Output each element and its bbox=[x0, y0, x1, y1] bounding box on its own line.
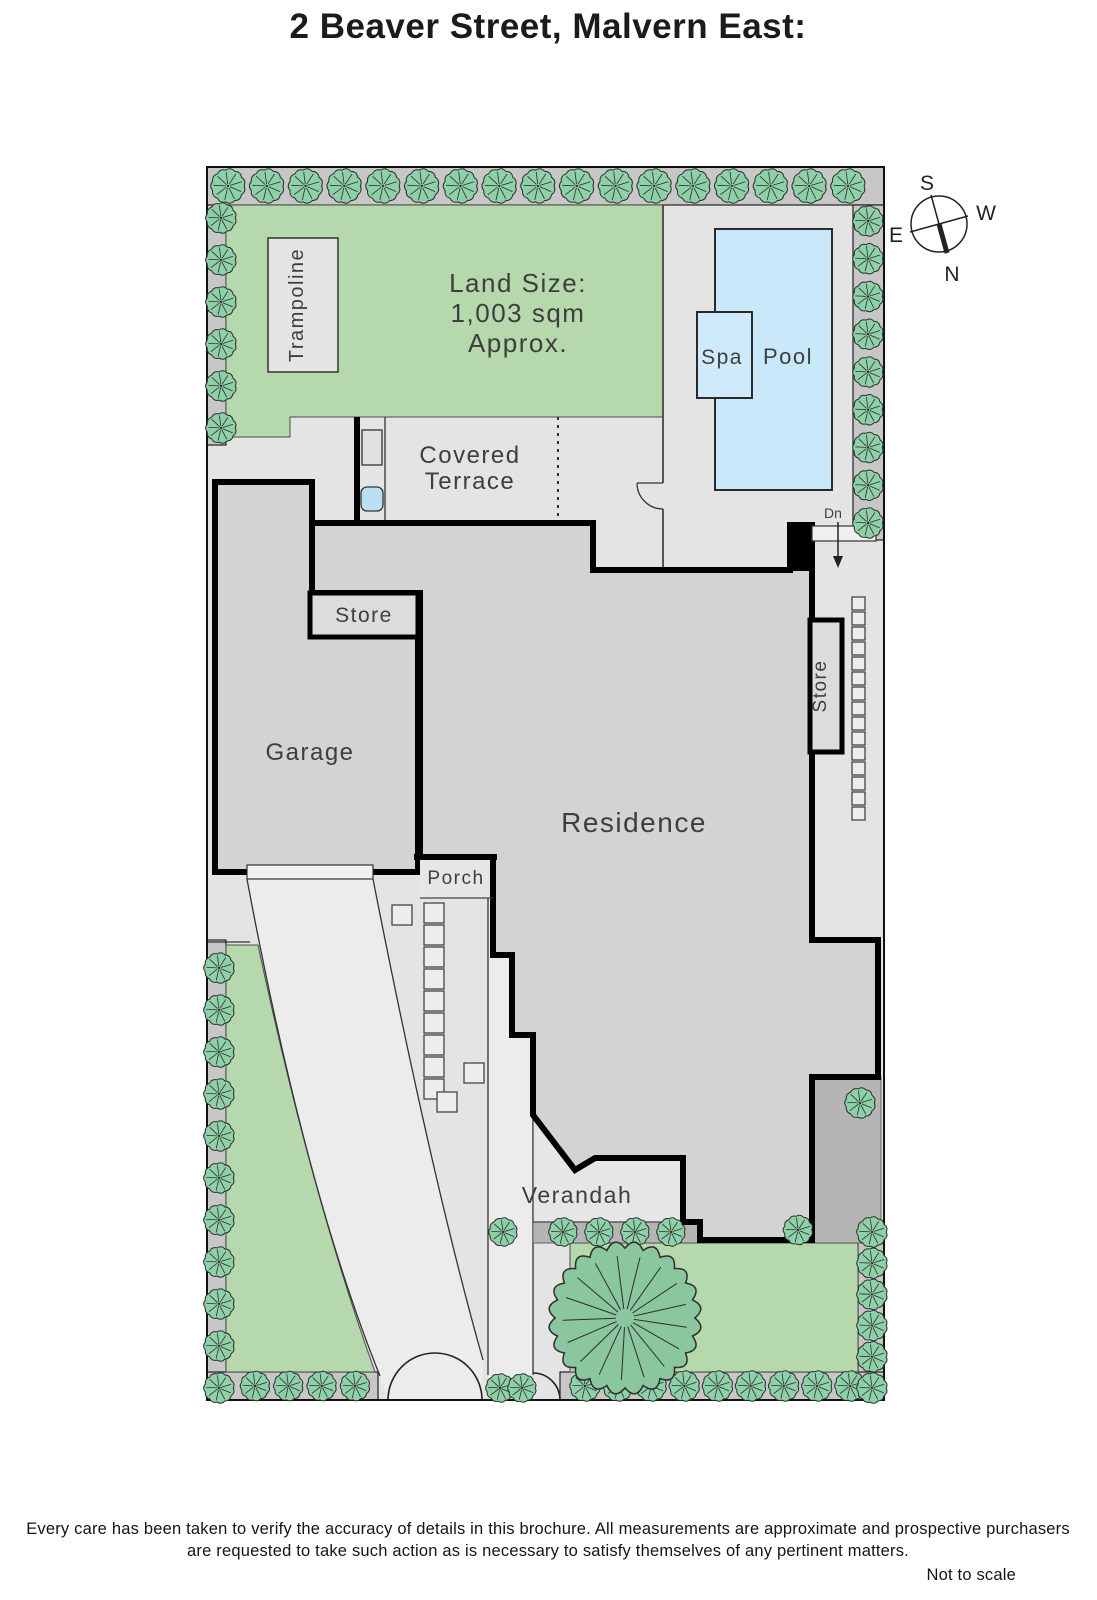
stepping-stone bbox=[464, 1063, 484, 1083]
tree-icon bbox=[404, 169, 438, 203]
tree-icon bbox=[637, 169, 671, 203]
stepping-stone bbox=[852, 687, 865, 700]
tree-icon bbox=[204, 1373, 234, 1404]
stepping-stone bbox=[437, 1092, 457, 1112]
tree-icon bbox=[559, 169, 593, 203]
tree-icon bbox=[735, 1371, 765, 1402]
tree-icon bbox=[327, 169, 361, 203]
tree-icon bbox=[521, 169, 555, 203]
outdoor-sink bbox=[361, 487, 383, 511]
land-size-line2: 1,003 sqm bbox=[451, 298, 586, 328]
compass-s: S bbox=[920, 172, 934, 195]
tree-icon bbox=[508, 1374, 536, 1403]
tree-icon bbox=[853, 394, 883, 425]
tree-icon bbox=[482, 169, 516, 203]
pool-label: Pool bbox=[763, 344, 813, 369]
tree-icon bbox=[443, 169, 477, 203]
tree-icon bbox=[853, 357, 883, 388]
tree-icon bbox=[657, 1218, 685, 1247]
spa-label: Spa bbox=[701, 346, 743, 369]
tree-icon bbox=[857, 1217, 887, 1248]
compass: S W E N bbox=[889, 172, 996, 286]
residence-label: Residence bbox=[561, 807, 707, 838]
covered-terrace-line2: Terrace bbox=[425, 468, 516, 495]
stepping-stone bbox=[424, 947, 444, 967]
stepping-stone bbox=[852, 777, 865, 790]
porch-label: Porch bbox=[427, 868, 484, 889]
tree-icon bbox=[831, 169, 865, 203]
tree-icon bbox=[204, 1331, 234, 1362]
tree-icon bbox=[211, 169, 245, 203]
tree-icon bbox=[792, 169, 826, 203]
stepping-stone bbox=[392, 905, 412, 925]
stepping-stone bbox=[424, 903, 444, 923]
tree-icon bbox=[853, 319, 883, 350]
tree-icon bbox=[783, 1215, 812, 1245]
stepping-stone bbox=[852, 732, 865, 745]
stepping-stone bbox=[424, 925, 444, 945]
stepping-stone bbox=[424, 991, 444, 1011]
tree-icon bbox=[853, 281, 883, 312]
stepping-stone bbox=[852, 642, 865, 655]
tree-icon bbox=[768, 1371, 798, 1402]
tree-icon bbox=[753, 169, 787, 203]
stepping-stone bbox=[852, 747, 865, 760]
store-left-label: Store bbox=[335, 604, 393, 627]
stepping-stone bbox=[852, 702, 865, 715]
tree-icon bbox=[204, 995, 234, 1026]
land-size-line1: Land Size: bbox=[449, 268, 587, 298]
stepping-stone bbox=[852, 612, 865, 625]
stepping-stone bbox=[852, 762, 865, 775]
tree-icon bbox=[853, 470, 883, 501]
tree-icon bbox=[853, 508, 883, 539]
tree-icon bbox=[204, 1289, 234, 1320]
tree-icon bbox=[204, 1205, 234, 1236]
footer-line1: Every care has been taken to verify the … bbox=[26, 1520, 1070, 1538]
tree-icon bbox=[857, 1279, 887, 1310]
tree-icon bbox=[206, 287, 236, 318]
tree-icon bbox=[853, 432, 883, 463]
land-size-line3: Approx. bbox=[468, 328, 568, 358]
stepping-stone bbox=[852, 657, 865, 670]
tree-icon bbox=[489, 1218, 517, 1247]
tree-icon bbox=[598, 169, 632, 203]
tree-icon bbox=[857, 1342, 887, 1373]
tree-icon bbox=[204, 1079, 234, 1110]
not-to-scale-note: Not to scale bbox=[926, 1566, 1016, 1584]
stepping-stone bbox=[424, 969, 444, 989]
page-title: 2 Beaver Street, Malvern East: bbox=[290, 7, 807, 46]
tree-icon bbox=[857, 1373, 887, 1404]
tree-icon bbox=[585, 1218, 613, 1247]
compass-north-pointer bbox=[939, 224, 947, 253]
tree-icon bbox=[206, 371, 236, 402]
trampoline-label: Trampoline bbox=[286, 248, 308, 362]
tree-icon bbox=[249, 169, 283, 203]
stepping-stone bbox=[852, 792, 865, 805]
tree-icon bbox=[204, 953, 234, 984]
stepping-stone bbox=[424, 1057, 444, 1077]
stepping-stone bbox=[852, 807, 865, 820]
tree-icon bbox=[204, 1163, 234, 1194]
tree-icon bbox=[702, 1371, 732, 1402]
tree-icon bbox=[853, 243, 883, 274]
tree-icon bbox=[857, 1310, 887, 1341]
tree-icon bbox=[240, 1371, 269, 1401]
footer-line2: are requested to take such action as is … bbox=[187, 1542, 909, 1560]
tree-icon bbox=[802, 1371, 832, 1402]
store-right-label: Store bbox=[810, 660, 831, 713]
tree-icon bbox=[857, 1248, 887, 1279]
tree-icon bbox=[206, 203, 236, 234]
tree-icon bbox=[307, 1371, 336, 1401]
site-plan-canvas: 2 Beaver Street, Malvern East: S W E N L… bbox=[0, 0, 1097, 1600]
tree-icon bbox=[206, 329, 236, 360]
tree-icon bbox=[206, 245, 236, 276]
tree-icon bbox=[549, 1218, 577, 1247]
wall-chunk bbox=[790, 525, 812, 571]
dn-label: Dn bbox=[824, 505, 842, 521]
compass-w: W bbox=[976, 202, 996, 225]
compass-e: E bbox=[889, 224, 903, 247]
tree-icon bbox=[206, 413, 236, 444]
stepping-stone bbox=[852, 597, 865, 610]
stepping-stone bbox=[424, 1013, 444, 1033]
bbq-bench bbox=[362, 430, 382, 465]
stepping-stone bbox=[852, 627, 865, 640]
compass-n: N bbox=[944, 263, 959, 286]
site-plan-page: 2 Beaver Street, Malvern East: S W E N L… bbox=[0, 0, 1097, 1600]
verandah-label: Verandah bbox=[522, 1182, 632, 1208]
left-upper-strip bbox=[207, 205, 226, 445]
tree-icon bbox=[845, 1088, 875, 1119]
tree-icon bbox=[204, 1247, 234, 1278]
garage-label: Garage bbox=[265, 739, 354, 766]
garage-door bbox=[247, 865, 373, 879]
tree-icon bbox=[273, 1371, 302, 1401]
stepping-stone bbox=[852, 717, 865, 730]
tree-icon bbox=[853, 206, 883, 237]
tree-icon bbox=[204, 1037, 234, 1068]
tree-icon bbox=[204, 1121, 234, 1152]
tree-icon bbox=[340, 1371, 369, 1401]
tree-icon bbox=[366, 169, 400, 203]
stepping-stone bbox=[852, 672, 865, 685]
stepping-stone bbox=[424, 1035, 444, 1055]
tree-icon bbox=[676, 169, 710, 203]
tree-icon bbox=[288, 169, 322, 203]
tree-icon bbox=[714, 169, 748, 203]
covered-terrace-line1: Covered bbox=[419, 442, 520, 469]
